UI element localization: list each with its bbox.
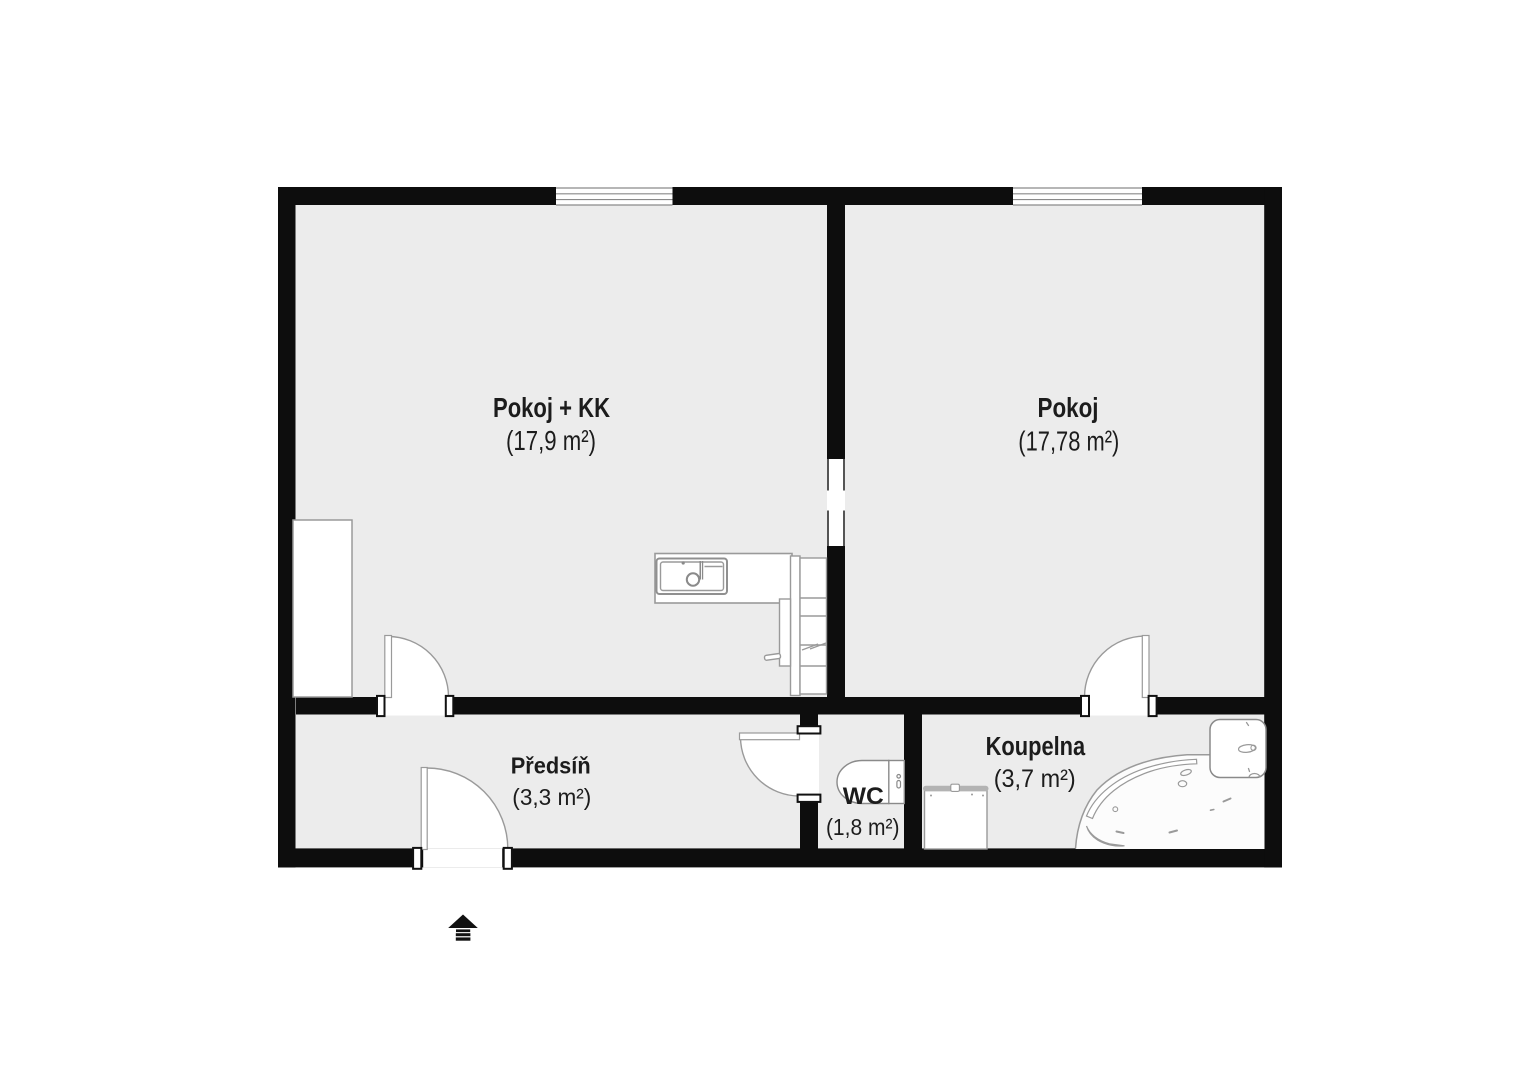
svg-text:(3,3 m²): (3,3 m²) xyxy=(512,784,591,810)
svg-text:Pokoj + KK: Pokoj + KK xyxy=(493,392,610,423)
svg-text:Předsíň: Předsíň xyxy=(511,753,591,779)
svg-text:(1,8 m²): (1,8 m²) xyxy=(826,814,900,840)
svg-text:Pokoj: Pokoj xyxy=(1038,392,1099,423)
svg-text:Koupelna: Koupelna xyxy=(986,733,1086,761)
svg-text:(17,9 m²): (17,9 m²) xyxy=(506,425,596,456)
svg-text:(17,78 m²): (17,78 m²) xyxy=(1018,426,1119,457)
svg-text:WC: WC xyxy=(843,783,884,810)
svg-text:(3,7 m²): (3,7 m²) xyxy=(994,765,1076,793)
